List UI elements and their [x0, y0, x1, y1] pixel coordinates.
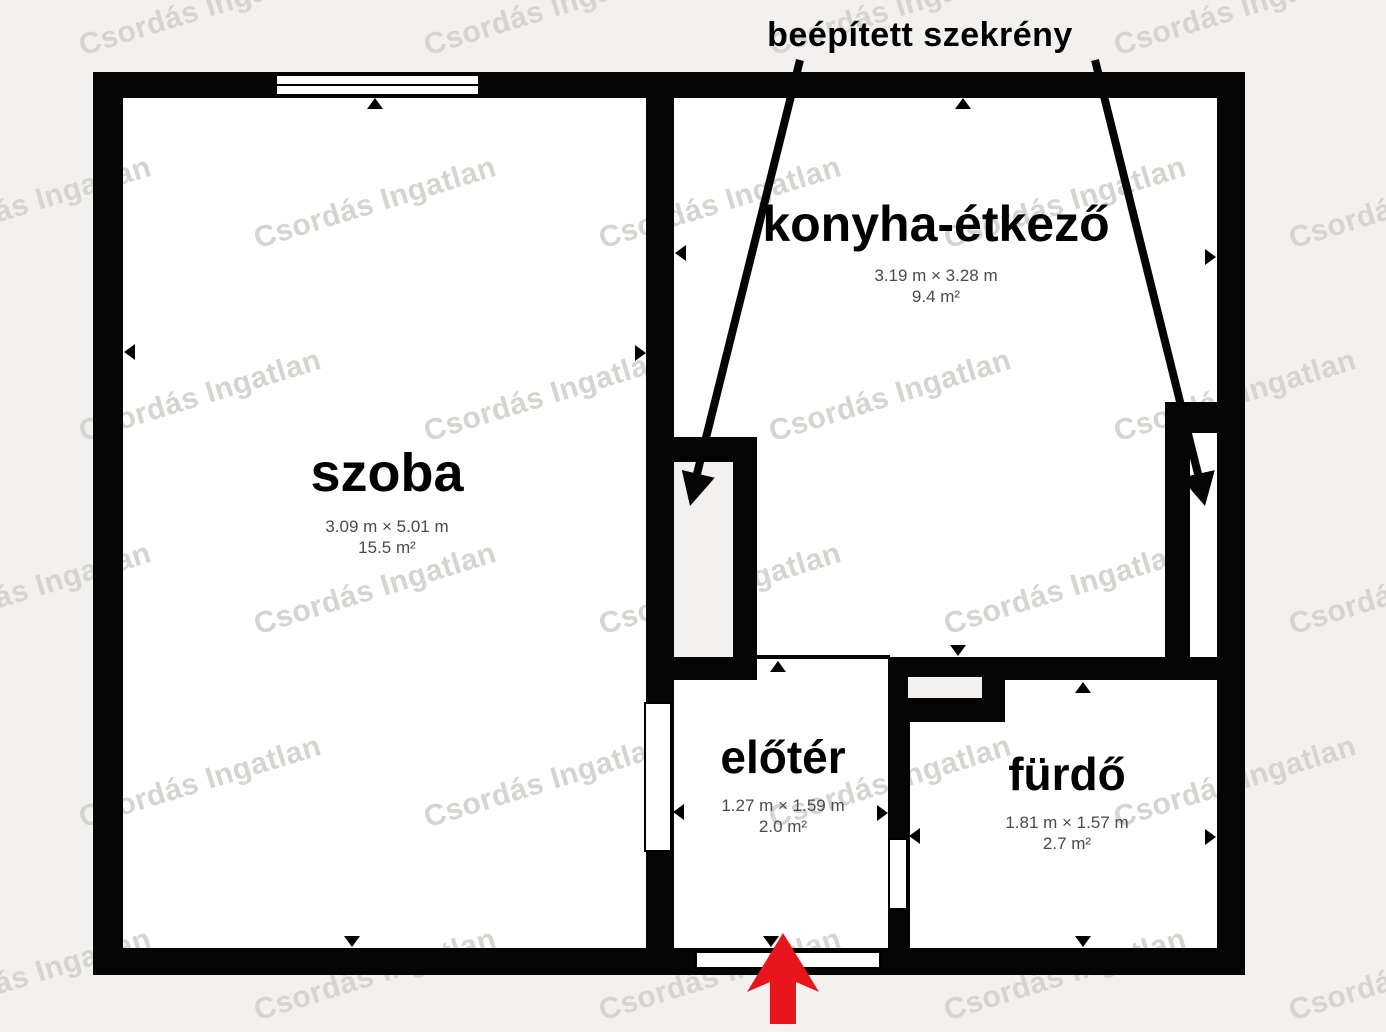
room-name-konyha: konyha-étkező — [736, 198, 1136, 251]
wall-top — [93, 72, 1245, 98]
dim-arrow-eloter-up — [770, 661, 786, 672]
watermark-text: Csordás Ingatlan — [420, 0, 670, 63]
wall-bottom — [93, 948, 1245, 975]
door-entrance — [695, 951, 881, 969]
wardrobe-2-wall-left — [1165, 402, 1190, 657]
wardrobe-2-niche — [1190, 433, 1217, 657]
dim-arrow-furdo-left — [909, 828, 920, 844]
wall-right — [1217, 72, 1245, 975]
room-area-furdo: 2.7 m² — [942, 833, 1192, 854]
dim-arrow-konyha-left — [675, 245, 686, 261]
konyha-eloter-passage-line — [757, 655, 890, 659]
floor-plan: Csordás IngatlanCsordás IngatlanCsordás … — [0, 0, 1386, 1032]
dim-arrow-konyha-down — [950, 645, 966, 656]
dim-arrow-szoba-left — [124, 344, 135, 360]
wardrobe-1-niche — [674, 462, 733, 657]
dim-arrow-furdo-up — [1075, 682, 1091, 693]
dim-arrow-szoba-up — [367, 98, 383, 109]
watermark-text: Csordás Ingatlan — [1110, 0, 1360, 63]
door-eloter-furdo — [888, 838, 908, 910]
furdo-duct-niche — [908, 677, 982, 698]
room-label-szoba: szoba 3.09 m × 5.01 m 15.5 m² — [237, 445, 537, 558]
dim-arrow-konyha-right — [1205, 249, 1216, 265]
dim-arrow-szoba-down — [344, 936, 360, 947]
room-area-konyha: 9.4 m² — [736, 286, 1136, 307]
wardrobe-1-wall-right — [733, 437, 757, 680]
wall-left — [93, 72, 123, 975]
room-label-furdo: fürdő 1.81 m × 1.57 m 2.7 m² — [942, 750, 1192, 854]
watermark-text: Csordás Ingatlan — [1285, 150, 1386, 256]
dim-arrow-furdo-down — [1075, 936, 1091, 947]
room-area-szoba: 15.5 m² — [237, 537, 537, 558]
wardrobe-1-wall-bottom — [646, 657, 757, 680]
dim-arrow-konyha-up — [955, 98, 971, 109]
room-dims-eloter: 1.27 m × 1.59 m — [658, 795, 908, 816]
plan-title: beépített szekrény — [700, 16, 1140, 55]
window-szoba-midline — [275, 84, 480, 86]
watermark-text: Csordás Ingatlan — [1285, 536, 1386, 642]
room-dims-konyha: 3.19 m × 3.28 m — [736, 265, 1136, 286]
room-name-eloter: előtér — [658, 733, 908, 781]
dim-arrow-eloter-down — [763, 936, 779, 947]
room-label-eloter: előtér 1.27 m × 1.59 m 2.0 m² — [658, 733, 908, 837]
room-dims-furdo: 1.81 m × 1.57 m — [942, 812, 1192, 833]
room-area-eloter: 2.0 m² — [658, 816, 908, 837]
watermark-text: Csordás Ingatlan — [1285, 922, 1386, 1028]
room-name-furdo: fürdő — [942, 750, 1192, 798]
room-dims-szoba: 3.09 m × 5.01 m — [237, 516, 537, 537]
dim-arrow-szoba-right — [635, 345, 646, 361]
room-name-szoba: szoba — [237, 445, 537, 502]
window-szoba — [275, 74, 480, 96]
dim-arrow-furdo-right — [1205, 829, 1216, 845]
room-label-konyha: konyha-étkező 3.19 m × 3.28 m 9.4 m² — [736, 198, 1136, 307]
watermark-text: Csordás Ingatlan — [75, 0, 325, 63]
